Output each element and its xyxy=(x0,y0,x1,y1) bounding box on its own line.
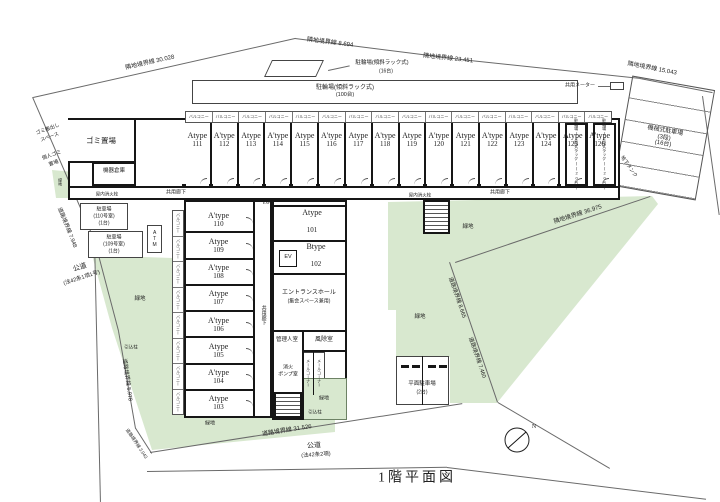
unit-cell: A'type122 xyxy=(478,123,505,186)
unit-type: A'type xyxy=(208,316,229,325)
unit-number: 105 xyxy=(213,351,224,359)
unit-cell: Atype103 xyxy=(184,389,253,415)
road-edge-line xyxy=(447,467,706,500)
balcony-cell: バルコニー xyxy=(173,236,183,262)
balcony-cell: バルコニー xyxy=(173,389,183,415)
unit-number: 119 xyxy=(407,140,417,148)
wheel-stop xyxy=(412,365,420,368)
expansion-joint-label: EXP.J xyxy=(263,201,274,205)
unit-type: A'type xyxy=(267,131,288,140)
unit-number: 117 xyxy=(353,140,363,148)
balcony-cell: バルコニー xyxy=(318,112,345,122)
wheel-stop xyxy=(439,365,447,368)
pump-room-label2: ポンプ室 xyxy=(278,372,298,377)
unit-number: 116 xyxy=(326,140,336,148)
unit-number: 118 xyxy=(380,140,390,148)
balcony-cell: バルコニー xyxy=(212,112,239,122)
unit-number: 115 xyxy=(300,140,310,148)
wheel-stop xyxy=(428,365,436,368)
personal-garbage-label2: 置場 xyxy=(48,160,59,168)
parking110-label: 駐車場 xyxy=(96,207,111,212)
bike16-label: 駐輪場(傾斜ラック式) xyxy=(355,61,408,67)
unit-cell: Atype119 xyxy=(398,123,425,186)
flat-parking-label: 平面駐車場 xyxy=(408,382,436,388)
parking109-count: (1台) xyxy=(108,249,119,254)
green-label: 緑地 xyxy=(414,315,425,321)
stairs-center xyxy=(274,392,302,418)
service-pole-label: 引込柱 xyxy=(124,346,138,351)
unit-cell: A'type110 xyxy=(184,207,253,231)
equipment-room-label: 機器倉庫 xyxy=(103,169,125,175)
unit-cell: A'type124 xyxy=(532,123,559,186)
balcony-cell: バルコニー xyxy=(173,211,183,236)
atm-label: ATM xyxy=(151,230,156,248)
unit-101: Atype 101 xyxy=(302,203,322,237)
pump-room-label: 消火 xyxy=(283,365,293,370)
page-title: 1階平面図 xyxy=(378,472,456,487)
entrance-hall-label2: (集会スペース兼用) xyxy=(288,299,331,304)
stairs-right xyxy=(423,200,450,234)
parking109-label: 駐車場 xyxy=(106,235,121,240)
unit-type: A'type xyxy=(208,368,229,377)
hydrant-label: 屋内消火栓 xyxy=(96,193,119,198)
hydrant-label: 屋内消火栓 xyxy=(409,194,432,199)
green-label: 緑地 xyxy=(462,225,473,231)
unit-number: 103 xyxy=(213,403,224,411)
unit-number: 124 xyxy=(541,140,552,148)
bike100-count: (100台) xyxy=(336,93,354,99)
unit-type: A'type xyxy=(214,131,235,140)
unit-type: A'type xyxy=(482,131,503,140)
left-wing-units: A'type110Atype109A'type108Atype107A'type… xyxy=(184,207,253,415)
wheel-stop xyxy=(401,365,409,368)
unit-102: Btype 102 xyxy=(306,237,325,271)
balcony-cell: バルコニー xyxy=(558,112,585,122)
unit-number: 113 xyxy=(246,140,256,148)
green-label: 緑地 xyxy=(319,396,329,401)
unit-cell: A'type114 xyxy=(263,123,290,186)
balcony-cell: バルコニー xyxy=(173,312,183,338)
parking110-count: (1台) xyxy=(98,221,109,226)
unit-cell: A'type118 xyxy=(371,123,398,186)
green-label: 緑地 xyxy=(205,421,215,426)
unit-cell: Atype115 xyxy=(290,123,317,186)
wall-windbreak-bottom xyxy=(302,350,347,352)
unit-type: Atype xyxy=(509,131,529,140)
balcony-cell: バルコニー xyxy=(173,287,183,313)
unit-number: 120 xyxy=(433,140,444,148)
unit-cell: A'type104 xyxy=(184,363,253,389)
unit-type: A'type xyxy=(535,131,556,140)
bike-room-label: 駐輪場(2段式ラック)(20台) xyxy=(602,119,606,190)
unit-cell: Atype109 xyxy=(184,231,253,257)
bicycle-parking-16 xyxy=(264,60,324,77)
green-label: 緑地 xyxy=(58,178,62,186)
balcony-cell: バルコニー xyxy=(478,112,505,122)
balcony-cell: バルコニー xyxy=(531,112,558,122)
mail-corner-label: メールコーナー xyxy=(317,359,321,387)
road-label: 公道 xyxy=(307,442,321,450)
balcony-cell: バルコニー xyxy=(265,112,292,122)
balcony-cell: バルコニー xyxy=(173,261,183,287)
balcony-cell: バルコニー xyxy=(505,112,532,122)
top-balcony-strip: バルコニーバルコニーバルコニーバルコニーバルコニーバルコニーバルコニーバルコニー… xyxy=(185,111,612,123)
garbage-room-label: ゴミ置場 xyxy=(86,137,116,145)
flat-parking-count: (2台) xyxy=(416,390,427,395)
unit-cell: Atype111 xyxy=(185,123,210,186)
boundary-label: 隣地境界線 8.694 xyxy=(306,37,353,49)
unit-cell: Atype121 xyxy=(451,123,478,186)
mail-corner-label: メールコーナー xyxy=(306,359,310,387)
leader-line xyxy=(328,65,350,71)
balcony-cell: バルコニー xyxy=(173,338,183,364)
balcony-cell: バルコニー xyxy=(451,112,478,122)
corridor-label: 共用廊下 xyxy=(260,305,265,325)
balcony-cell: バルコニー xyxy=(584,112,611,122)
boundary-label: 隣地境界線 15.043 xyxy=(627,61,677,77)
unit-cell: A'type116 xyxy=(317,123,344,186)
balcony-cell: バルコニー xyxy=(238,112,265,122)
unit-number: 108 xyxy=(213,272,224,280)
road-label: 公道 xyxy=(72,262,88,273)
balcony-cell: バルコニー xyxy=(371,112,398,122)
unit-cell: A'type120 xyxy=(424,123,451,186)
bike-room-label: 駐輪場(2段式ラック)(20台) xyxy=(574,119,578,190)
unit-type: A'type xyxy=(208,211,229,220)
unit-type: Atype xyxy=(188,131,208,140)
unit-cell: Atype117 xyxy=(344,123,371,186)
unit-type: A'type xyxy=(428,131,449,140)
common-meter-box xyxy=(610,82,624,90)
unit-type: A'type xyxy=(589,131,610,140)
top-wing-units: Atype111A'type112Atype113A'type114Atype1… xyxy=(185,123,612,186)
balcony-cell: バルコニー xyxy=(425,112,452,122)
balcony-cell: バルコニー xyxy=(292,112,319,122)
leader-line xyxy=(598,86,610,87)
unit-type: Atype xyxy=(563,131,583,140)
unit-cell: Atype107 xyxy=(184,284,253,310)
unit-cell: A'type126 xyxy=(585,123,612,186)
unit-type: Atype xyxy=(209,237,229,246)
balcony-cell: バルコニー xyxy=(398,112,425,122)
corridor-label: 共用廊下 xyxy=(166,190,186,195)
bike16-count: (16台) xyxy=(379,69,393,74)
unit-type: Atype xyxy=(209,289,229,298)
wall-vert-center xyxy=(302,330,304,420)
corridor-label: 共用廊下 xyxy=(490,190,510,195)
unit-type: Atype xyxy=(302,208,322,217)
unit-number: 110 xyxy=(213,220,223,228)
bike100-label: 駐輪場(傾斜ラック式) xyxy=(316,85,374,91)
unit-number: 111 xyxy=(192,140,202,148)
unit-number: 102 xyxy=(311,260,322,268)
unit-type: A'type xyxy=(208,263,229,272)
unit-number: 121 xyxy=(460,140,471,148)
boundary-line xyxy=(470,60,640,79)
parking110-room: (110号室) xyxy=(93,214,114,219)
entrance-hall-label: エントランスホール xyxy=(282,290,336,296)
green-label: 緑地 xyxy=(134,297,145,303)
unit-number: 112 xyxy=(219,140,229,148)
service-pole-label: 引込柱 xyxy=(308,411,322,416)
balcony-cell: バルコニー xyxy=(186,112,212,122)
boundary-label: 道路境界線 7.948 xyxy=(55,207,76,249)
windbreak-label: 風除室 xyxy=(315,337,333,343)
unit-type: Atype xyxy=(402,131,422,140)
elevator-label: EV xyxy=(284,255,291,261)
unit-type: Atype xyxy=(456,131,476,140)
unit-number: 114 xyxy=(273,140,283,148)
unit-cell: A'type106 xyxy=(184,310,253,336)
unit-type: Atype xyxy=(209,342,229,351)
unit-cell: Atype125 xyxy=(558,123,585,186)
boundary-label: 隣地境界線 23.451 xyxy=(423,53,473,64)
boundary-label: 隣地境界線 30.028 xyxy=(125,54,175,71)
north-label: N xyxy=(532,424,536,430)
mechanical-parking: 機械式駐車場 (3段) (16台) xyxy=(613,76,715,201)
mail-divider xyxy=(313,352,314,395)
common-meter-label: 共用メーター xyxy=(565,83,595,88)
unit-type: A'type xyxy=(321,131,342,140)
manager-room-label: 管理人室 xyxy=(276,338,298,344)
unit-number: 101 xyxy=(307,226,318,234)
unit-number: 107 xyxy=(213,298,224,306)
unit-cell: A'type112 xyxy=(210,123,237,186)
unit-number: 104 xyxy=(213,377,224,385)
unit-number: 122 xyxy=(487,140,498,148)
unit-cell: A'type108 xyxy=(184,258,253,284)
unit-type: Atype xyxy=(349,131,369,140)
left-corridor-wall xyxy=(253,200,255,418)
parking109-room: (109号室) xyxy=(103,242,125,247)
unit-number: 109 xyxy=(213,246,224,254)
north-arrow-icon xyxy=(504,427,530,453)
unit-type: Atype xyxy=(241,131,261,140)
bicycle-parking-100 xyxy=(192,80,578,104)
road-label: (法42条2項) xyxy=(301,452,331,460)
left-balcony-strip: バルコニーバルコニーバルコニーバルコニーバルコニーバルコニーバルコニーバルコニー xyxy=(172,210,184,415)
balcony-cell: バルコニー xyxy=(173,363,183,389)
unit-number: 123 xyxy=(514,140,525,148)
unit-cell: Atype113 xyxy=(237,123,264,186)
floor-plan-canvas: 機械式駐車場 (3段) (16台) バルコニーバルコニーバルコニーバルコニーバル… xyxy=(0,0,720,502)
unit-cell: Atype123 xyxy=(505,123,532,186)
unit-type: Atype xyxy=(209,394,229,403)
unit-cell: Atype105 xyxy=(184,336,253,362)
unit-number: 106 xyxy=(213,325,224,333)
unit-type: A'type xyxy=(375,131,396,140)
unit-type: Atype xyxy=(295,131,315,140)
unit-type: Btype xyxy=(306,242,325,251)
wall-102-hall xyxy=(272,273,347,275)
wall-hall-bottom xyxy=(272,330,347,332)
balcony-cell: バルコニー xyxy=(345,112,372,122)
